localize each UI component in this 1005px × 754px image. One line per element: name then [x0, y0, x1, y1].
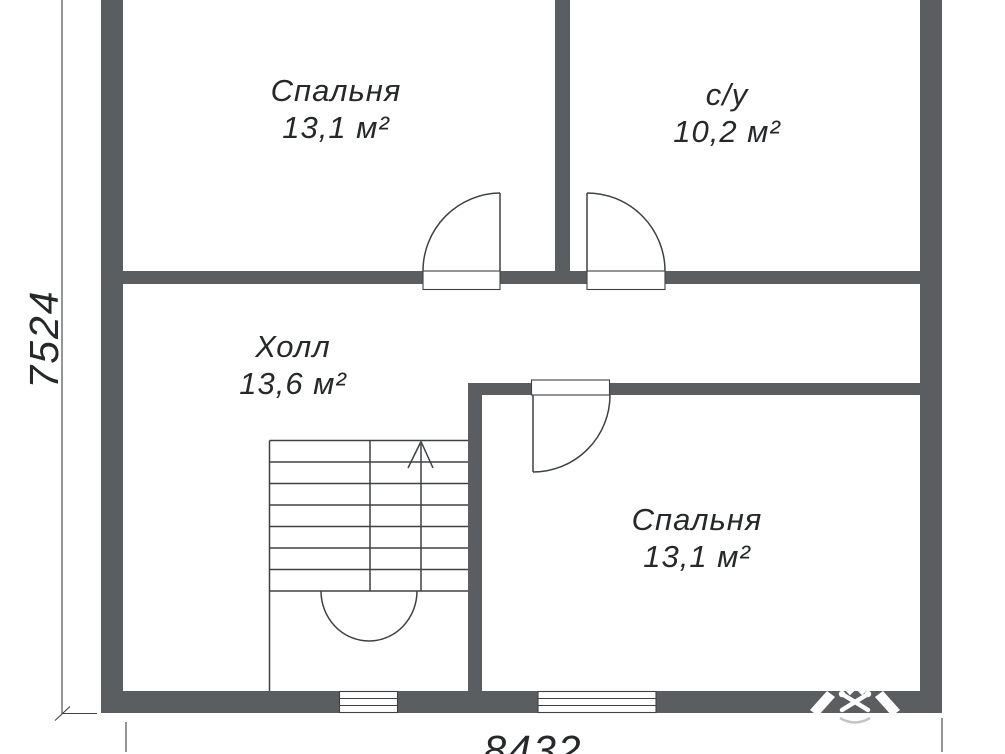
room-label-bedroom-bottom: Спальня 13,1 м²	[567, 501, 827, 575]
stair-up-arrow-icon	[408, 442, 433, 592]
room-name: Спальня	[206, 72, 466, 109]
wall-interior-vertical	[468, 395, 482, 691]
room-area: 13,6 м²	[163, 365, 423, 402]
door-swing-arc	[423, 193, 500, 271]
door-bedroom-top	[423, 193, 500, 271]
staircase	[270, 441, 469, 692]
room-area: 13,1 м²	[567, 538, 827, 575]
doors	[423, 193, 665, 472]
wall-mid-center-segment	[500, 271, 587, 284]
floor-plan: Спальня 13,1 м² с/у 10,2 м² Холл 13,6 м²…	[0, 0, 1005, 754]
room-area: 13,1 м²	[206, 109, 466, 146]
wall-left-outer	[101, 0, 123, 713]
dimension-bottom-label: 8432	[433, 729, 633, 754]
door-swing-arc	[587, 193, 665, 271]
wall-lower-right-segment	[610, 383, 920, 395]
wall-mid-right-segment	[665, 271, 920, 284]
room-label-bathroom: с/у 10,2 м²	[597, 76, 857, 150]
room-area: 10,2 м²	[597, 113, 857, 150]
threshold-bedroom-top-door	[423, 271, 500, 290]
door-swing-arc	[533, 395, 610, 472]
wall-lower-left-segment	[468, 383, 531, 395]
window-1	[340, 692, 398, 713]
room-label-hall: Холл 13,6 м²	[163, 328, 423, 402]
dimension-left-label: 7524	[24, 239, 64, 439]
door-thresholds	[423, 271, 665, 395]
room-name: Холл	[163, 328, 423, 365]
window-2	[538, 692, 656, 713]
stair-turn-curve	[321, 591, 417, 641]
door-bedroom-bottom	[533, 395, 610, 472]
door-bathroom	[587, 193, 665, 271]
room-name: Спальня	[567, 501, 827, 538]
wall-right-outer	[920, 0, 942, 713]
threshold-bathroom-door	[587, 271, 665, 290]
threshold-bedroom-bottom-door	[532, 380, 610, 395]
wall-mid-left-segment	[123, 271, 423, 284]
room-label-bedroom-top: Спальня 13,1 м²	[206, 72, 466, 146]
room-name: с/у	[597, 76, 857, 113]
wall-bedroom-bath-divider	[555, 0, 570, 271]
